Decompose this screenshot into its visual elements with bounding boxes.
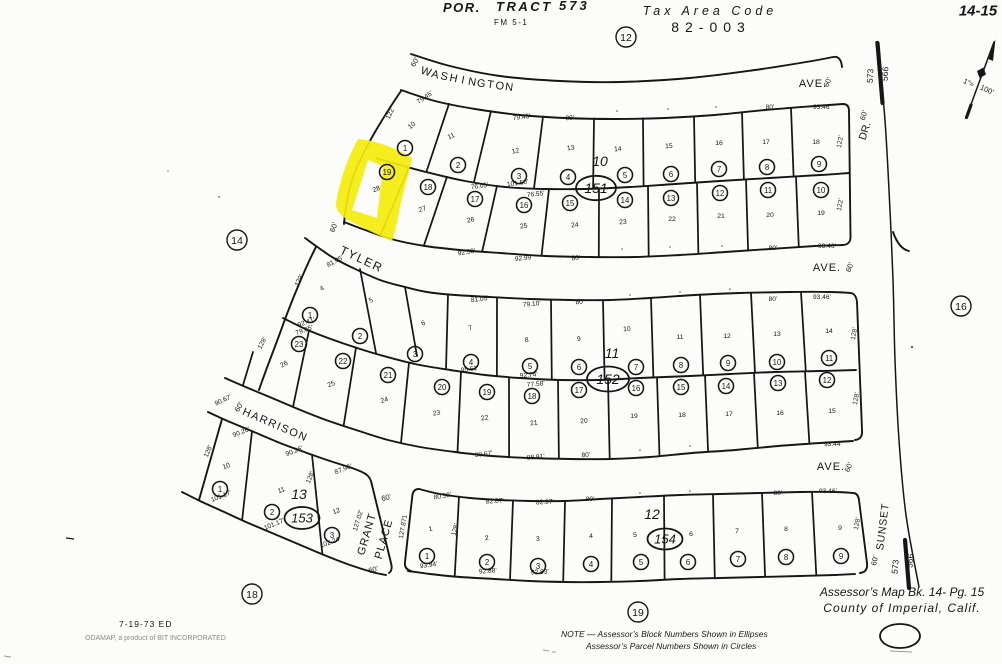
svg-text:9: 9: [839, 552, 843, 561]
svg-text:15: 15: [665, 143, 673, 150]
svg-text:92.83’: 92.83’: [531, 569, 550, 577]
svg-text:Tax Area Code: Tax Area Code: [643, 4, 777, 18]
svg-text:4: 4: [566, 173, 571, 182]
svg-text:4: 4: [589, 560, 594, 569]
svg-text:15: 15: [677, 383, 686, 392]
svg-text:566: 566: [880, 66, 891, 81]
svg-text:15: 15: [566, 199, 575, 208]
svg-text:”: ”: [729, 288, 731, 295]
svg-text:2: 2: [485, 558, 489, 567]
svg-text:17: 17: [471, 195, 480, 204]
svg-text:7: 7: [717, 165, 721, 174]
svg-text:93.46’: 93.46’: [819, 488, 838, 495]
svg-text:24: 24: [571, 222, 579, 230]
svg-text:”: ”: [679, 291, 681, 298]
svg-text:County of Imperial, Calif.: County of Imperial, Calif.: [823, 601, 980, 615]
svg-text:8: 8: [784, 526, 788, 533]
svg-text:”: ”: [669, 246, 671, 253]
svg-text:”: ”: [689, 445, 691, 452]
svg-text:80’: 80’: [774, 490, 783, 497]
svg-text:”: ”: [639, 449, 641, 456]
svg-text:13: 13: [567, 144, 576, 152]
svg-text:5: 5: [623, 171, 628, 180]
svg-text:14: 14: [231, 235, 243, 247]
svg-text:1: 1: [403, 144, 407, 153]
svg-text:152: 152: [596, 371, 620, 387]
svg-text:Assessor’s Map Bk. 14- Pg: Assessor’s Map Bk. 14- Pg. 15: [819, 585, 985, 599]
svg-text:80’: 80’: [575, 299, 585, 306]
svg-text:6: 6: [577, 363, 581, 372]
svg-text:25: 25: [520, 222, 529, 230]
svg-text:9: 9: [838, 525, 842, 532]
svg-text:6: 6: [669, 170, 673, 179]
svg-text:17: 17: [762, 139, 770, 146]
svg-text:80’: 80’: [769, 296, 778, 303]
svg-text:2: 2: [270, 508, 274, 517]
svg-text:82.87’: 82.87’: [486, 497, 505, 505]
svg-text:566: 566: [904, 553, 915, 568]
svg-text:16: 16: [955, 301, 967, 313]
svg-text:21: 21: [717, 213, 725, 220]
svg-text:5: 5: [528, 362, 533, 371]
svg-text:12: 12: [823, 376, 832, 385]
svg-text:19: 19: [483, 388, 492, 397]
svg-text:573: 573: [559, 0, 590, 13]
svg-text:12: 12: [644, 506, 660, 522]
svg-text:19: 19: [383, 168, 392, 177]
svg-text:AVE.: AVE.: [813, 262, 841, 274]
svg-text:13: 13: [291, 486, 307, 502]
svg-text:573: 573: [865, 68, 876, 83]
svg-text:93.44’: 93.44’: [824, 441, 843, 448]
svg-text:12: 12: [716, 189, 725, 198]
svg-text:8: 8: [765, 163, 769, 172]
svg-text:2: 2: [456, 161, 460, 170]
svg-text:20: 20: [580, 418, 588, 425]
svg-text:3: 3: [413, 350, 417, 359]
svg-text:18: 18: [246, 589, 258, 601]
svg-text:3: 3: [536, 536, 540, 543]
svg-text:2: 2: [358, 332, 362, 341]
svg-text:22: 22: [481, 414, 490, 422]
svg-text:11: 11: [764, 186, 772, 195]
svg-text:1: 1: [425, 552, 429, 561]
svg-text:20: 20: [438, 383, 447, 392]
svg-text:10: 10: [773, 358, 782, 367]
svg-text:8: 8: [679, 361, 683, 370]
svg-text:80’: 80’: [571, 255, 581, 262]
svg-text:20: 20: [766, 212, 774, 219]
svg-text:5: 5: [639, 558, 644, 567]
svg-text:80’: 80’: [581, 452, 591, 459]
svg-text:6: 6: [689, 531, 693, 538]
svg-text:80’: 80’: [766, 104, 775, 111]
svg-text:82-003: 82-003: [671, 19, 751, 35]
svg-text:”: ”: [629, 294, 631, 301]
svg-text:8: 8: [784, 553, 788, 562]
svg-text:80’: 80’: [769, 245, 778, 252]
svg-text:N: N: [504, 81, 514, 94]
svg-text:16: 16: [776, 410, 784, 417]
svg-text:16: 16: [632, 384, 641, 393]
svg-text:93.46’: 93.46’: [818, 243, 837, 250]
svg-text:”: ”: [616, 110, 618, 117]
svg-text:10: 10: [592, 153, 608, 169]
svg-text:11: 11: [676, 334, 683, 341]
svg-text:154: 154: [654, 532, 676, 547]
svg-text:13: 13: [667, 194, 676, 203]
svg-text:18: 18: [528, 392, 537, 401]
svg-text:14: 14: [614, 146, 622, 154]
svg-text:G: G: [476, 77, 486, 90]
svg-text:10: 10: [817, 186, 826, 195]
svg-text:23: 23: [619, 219, 627, 226]
svg-text:17: 17: [725, 411, 733, 418]
svg-text:18: 18: [424, 183, 433, 192]
svg-text:7: 7: [634, 363, 638, 372]
svg-text:14: 14: [722, 382, 731, 391]
svg-text:21: 21: [384, 371, 393, 380]
svg-text:18: 18: [678, 412, 686, 419]
svg-text:10: 10: [623, 326, 631, 333]
svg-text:19: 19: [817, 210, 825, 217]
svg-text:TRACT: TRACT: [496, 0, 553, 14]
svg-text:6: 6: [686, 558, 690, 567]
svg-text:14: 14: [621, 196, 630, 205]
svg-text:AVE.: AVE.: [817, 461, 845, 473]
svg-text:151: 151: [584, 180, 607, 196]
svg-text:80’: 80’: [586, 496, 595, 503]
svg-text:”: ”: [689, 490, 691, 497]
svg-text:5: 5: [633, 532, 637, 539]
svg-text:”: ”: [721, 245, 723, 252]
svg-text:93.46’: 93.46’: [813, 104, 832, 111]
svg-text:153: 153: [291, 511, 313, 526]
svg-text:11: 11: [825, 354, 833, 363]
svg-text:ODAMAP, a product of BIT: ODAMAP, a product of BIT INCORPORATED: [85, 635, 226, 642]
svg-text:80’: 80’: [565, 115, 575, 123]
svg-text:82.97’: 82.97’: [536, 499, 555, 507]
svg-text:13: 13: [774, 379, 783, 388]
svg-text:12: 12: [620, 32, 632, 44]
svg-text:18: 18: [812, 139, 820, 146]
svg-text:Assessor’s Parcel Numbers S: Assessor’s Parcel Numbers Shown in Circl…: [585, 641, 757, 651]
svg-text:”: ”: [639, 492, 641, 499]
svg-text:7-19-73 ED: 7-19-73 ED: [119, 619, 172, 629]
svg-text:21: 21: [530, 420, 538, 428]
svg-text:17: 17: [575, 386, 584, 395]
svg-text:22: 22: [339, 357, 348, 366]
svg-text:23: 23: [295, 340, 304, 349]
svg-text:12: 12: [723, 333, 731, 340]
svg-text:16: 16: [520, 201, 529, 210]
svg-text:92.88’: 92.88’: [479, 567, 498, 575]
svg-text:9: 9: [817, 160, 821, 169]
svg-text:13: 13: [773, 331, 781, 338]
svg-text:4: 4: [589, 533, 593, 540]
svg-text:93.46’: 93.46’: [813, 294, 832, 301]
svg-text:7: 7: [736, 555, 740, 564]
svg-text:573: 573: [889, 559, 900, 574]
svg-text:”: ”: [715, 106, 717, 113]
svg-text:9: 9: [726, 359, 730, 368]
svg-text:22: 22: [668, 216, 676, 223]
svg-text:POR.: POR.: [443, 0, 481, 15]
svg-text:15: 15: [828, 408, 836, 415]
svg-text:16: 16: [715, 140, 723, 147]
svg-text:FM 5-1: FM 5-1: [494, 18, 528, 27]
svg-text:”: ”: [667, 108, 669, 115]
svg-text:19: 19: [632, 607, 644, 619]
svg-text:7: 7: [735, 528, 739, 535]
svg-text:NOTE — Assessor’s Block Numb: NOTE — Assessor’s Block Numbers Shown in…: [561, 629, 768, 639]
svg-text:14-15: 14-15: [959, 3, 998, 20]
svg-text:19: 19: [630, 413, 638, 420]
svg-text:14: 14: [825, 328, 833, 335]
svg-text:11: 11: [605, 345, 620, 361]
svg-text:”: ”: [621, 248, 623, 255]
